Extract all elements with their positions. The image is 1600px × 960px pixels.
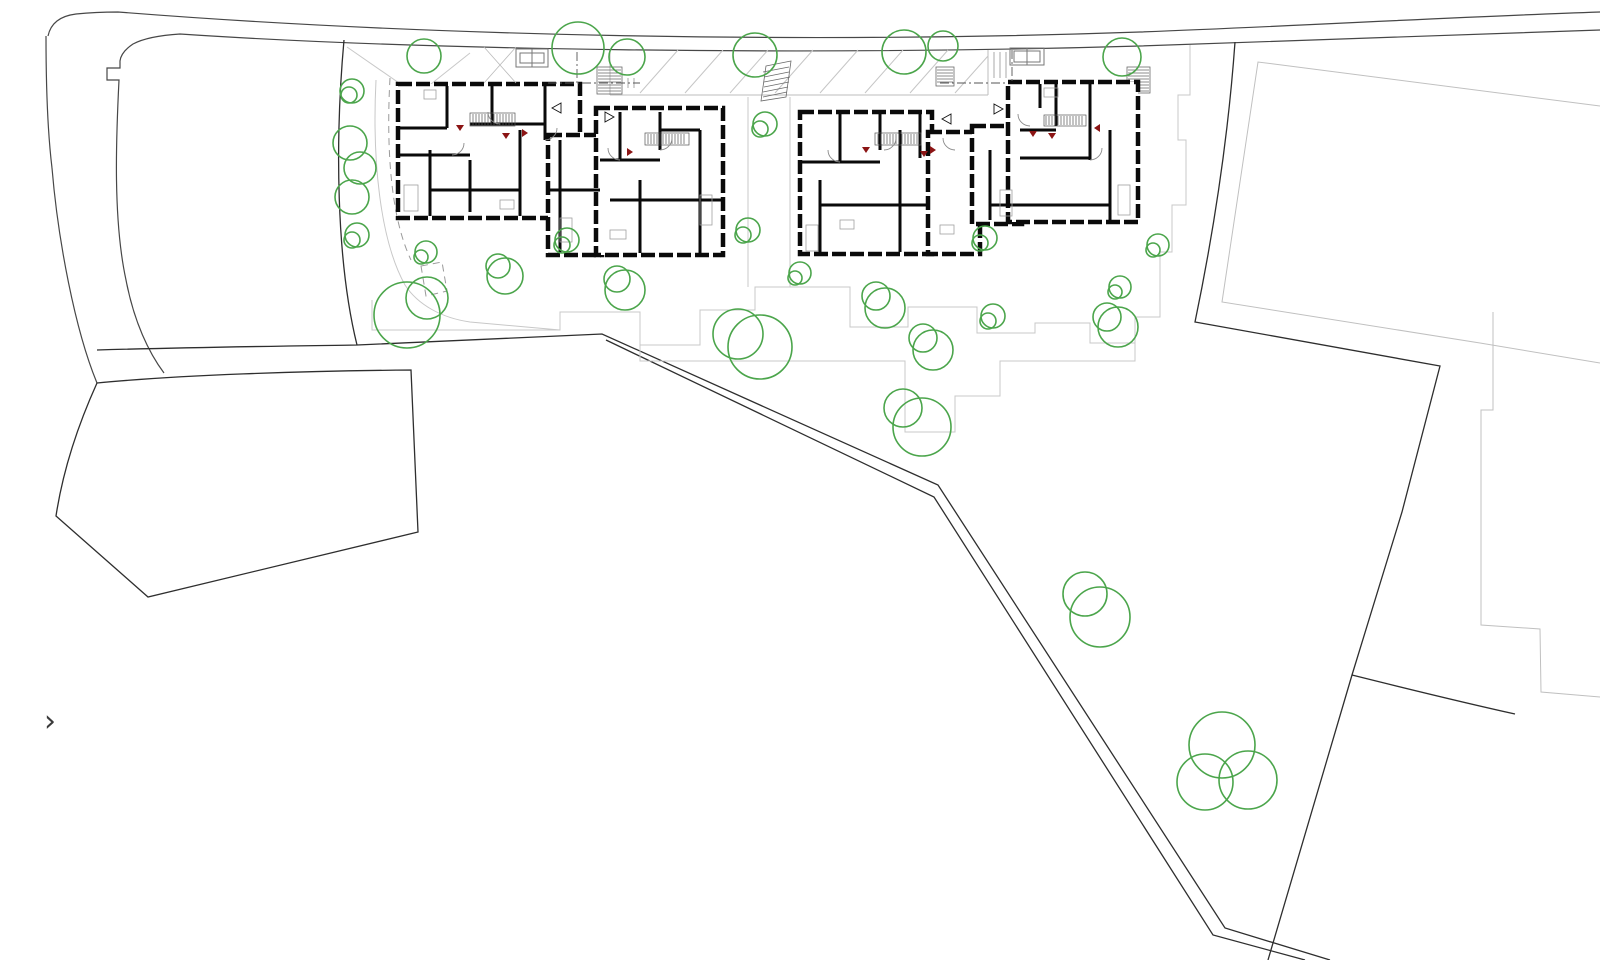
tree-canopy bbox=[862, 282, 890, 310]
neighbor-parcel-outline bbox=[1222, 62, 1600, 363]
tree-canopy bbox=[909, 324, 937, 352]
site-boundary-line bbox=[1195, 42, 1440, 960]
tree-canopy bbox=[335, 180, 369, 214]
outdoor-stair bbox=[763, 67, 790, 97]
roof-access-box bbox=[484, 47, 516, 83]
navigation[interactable]: › bbox=[44, 704, 56, 739]
outdoor-stair bbox=[937, 70, 953, 82]
tree-canopy bbox=[753, 112, 777, 136]
tree-canopy bbox=[733, 33, 777, 77]
tree-canopy bbox=[1070, 587, 1130, 647]
site-boundaries bbox=[56, 40, 1515, 960]
tree-canopy bbox=[406, 277, 448, 319]
section-marker-triangle bbox=[994, 104, 1003, 114]
property-dashdot bbox=[548, 50, 1012, 83]
tree-canopy bbox=[1063, 572, 1107, 616]
road-edge-line bbox=[46, 36, 52, 168]
road-edge-line bbox=[52, 168, 97, 383]
tree-canopy bbox=[552, 22, 604, 74]
road-edge-line bbox=[48, 12, 1600, 38]
tree-canopy bbox=[981, 304, 1005, 328]
tree-canopy bbox=[1219, 751, 1277, 809]
site-boundary-line bbox=[56, 370, 418, 597]
tree-canopy bbox=[407, 39, 441, 73]
tree-canopy bbox=[913, 330, 953, 370]
buildings bbox=[398, 82, 1138, 255]
site-boundary-line bbox=[1352, 675, 1515, 714]
tree-canopy bbox=[1103, 38, 1141, 76]
tree-canopy bbox=[884, 389, 922, 427]
building-east-block-b bbox=[1008, 82, 1138, 222]
tree-canopy bbox=[345, 223, 369, 247]
neighbor-parcel-outline bbox=[1481, 312, 1600, 697]
tree-canopy bbox=[609, 39, 645, 75]
neighbor-parcels bbox=[1222, 62, 1600, 697]
tree-canopy bbox=[341, 87, 357, 103]
chevron-right-icon[interactable]: › bbox=[44, 704, 56, 739]
tree-canopy bbox=[865, 288, 905, 328]
tree-canopy bbox=[340, 79, 364, 103]
terrace-edge-line bbox=[748, 97, 790, 287]
site-plan-drawing: › bbox=[0, 0, 1600, 960]
tree-canopy bbox=[1093, 303, 1121, 331]
site-boundary-line bbox=[97, 334, 1330, 960]
tree-canopy bbox=[713, 309, 763, 359]
tree-canopy bbox=[928, 31, 958, 61]
parking-line bbox=[610, 50, 988, 95]
site-boundary-line bbox=[606, 340, 1305, 960]
dash-dot-line bbox=[940, 50, 1012, 83]
section-marker-triangle bbox=[942, 114, 951, 124]
tree-canopy bbox=[1098, 307, 1138, 347]
parking-area bbox=[610, 50, 1006, 95]
site-plan-page: › bbox=[0, 0, 1600, 960]
